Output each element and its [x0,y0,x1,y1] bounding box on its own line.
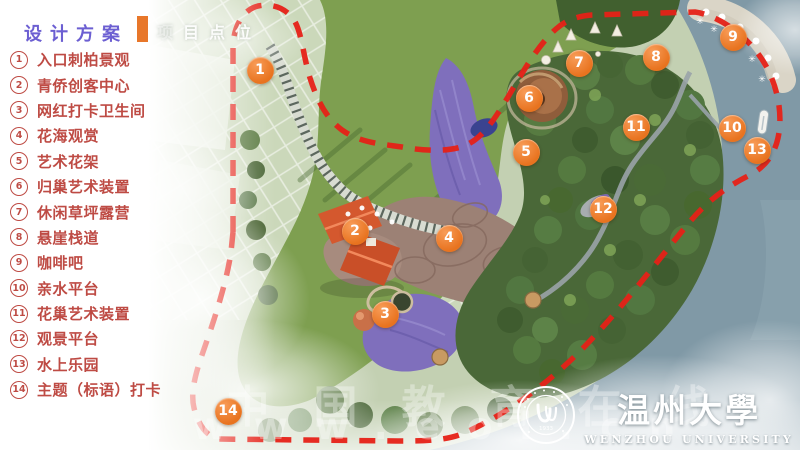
svg-text:✳: ✳ [710,25,718,35]
legend-item-number: 13 [10,355,28,373]
legend-item-label: 归巢艺术装置 [37,176,130,197]
university-seal-icon: 1933 [516,385,576,445]
map-marker-14: 14 [215,398,242,425]
legend-item: 3网红打卡卫生间 [10,98,161,123]
legend-list: 1入口刺柏景观2青侨创客中心3网红打卡卫生间4花海观赏5艺术花架6归巢艺术装置7… [10,47,161,402]
legend-item-number: 11 [10,305,28,323]
map-marker-12: 12 [590,196,617,223]
legend-item-label: 网红打卡卫生间 [37,100,146,121]
svg-text:✳: ✳ [758,75,766,85]
legend-item: 14主题（标语）打卡 [10,377,161,402]
map-marker-5: 5 [513,139,540,166]
legend-item-number: 2 [10,76,28,94]
map-marker-4: 4 [436,225,463,252]
legend-item-number: 7 [10,203,28,221]
legend-item-label: 亲水平台 [37,278,99,299]
legend-item-label: 艺术花架 [37,151,99,172]
orange-bar [137,16,148,42]
legend-item: 5艺术花架 [10,149,161,174]
legend-item: 1入口刺柏景观 [10,47,161,72]
legend-item: 11花巢艺术装置 [10,301,161,326]
legend-item-label: 入口刺柏景观 [37,49,130,70]
svg-text:1933: 1933 [539,426,553,432]
legend-item: 12观景平台 [10,326,161,351]
design-plan-slide: ✳✳✳ ✳✳ [0,0,800,450]
legend-item: 2青侨创客中心 [10,72,161,97]
legend-item-label: 花海观赏 [37,125,99,146]
legend-item-label: 咖啡吧 [37,252,84,273]
legend-item: 10亲水平台 [10,276,161,301]
map-marker-11: 11 [623,114,650,141]
legend-item-number: 6 [10,178,28,196]
legend-item-number: 9 [10,254,28,272]
legend-item-label: 观景平台 [37,328,99,349]
map-marker-2: 2 [342,218,369,245]
legend-item-number: 12 [10,330,28,348]
page-title: 设计方案 [24,20,128,46]
university-name-zh: 温州大學 [617,384,761,432]
university-logo: 1933 温州大學 WENZHOU UNIVERSITY [516,384,794,446]
legend-item-number: 5 [10,152,28,170]
legend-item: 6归巢艺术装置 [10,174,161,199]
legend-panel: 设计方案 1入口刺柏景观2青侨创客中心3网红打卡卫生间4花海观赏5艺术花架6归巢… [0,0,215,450]
map-marker-7: 7 [566,50,593,77]
legend-item-number: 10 [10,279,28,297]
legend-item: 8悬崖栈道 [10,225,161,250]
legend-item: 7休闲草坪露营 [10,199,161,224]
map-marker-8: 8 [643,44,670,71]
legend-item-label: 青侨创客中心 [37,75,130,96]
university-names: 温州大學 WENZHOU UNIVERSITY [584,384,794,446]
legend-item-number: 4 [10,127,28,145]
legend-item-number: 14 [10,381,28,399]
map-marker-1: 1 [247,57,274,84]
legend-item-number: 8 [10,228,28,246]
legend-item-label: 花巢艺术装置 [37,303,130,324]
legend-item: 4花海观赏 [10,123,161,148]
legend-item-label: 主题（标语）打卡 [37,379,161,400]
map-marker-10: 10 [719,115,746,142]
svg-text:✳: ✳ [696,17,704,27]
map-marker-3: 3 [372,301,399,328]
legend-item-label: 悬崖栈道 [37,227,99,248]
map-marker-9: 9 [720,24,747,51]
map-marker-13: 13 [744,137,771,164]
legend-item-label: 水上乐园 [37,354,99,375]
map-header-title: 项目点位 [157,19,261,43]
university-name-en: WENZHOU UNIVERSITY [584,433,794,446]
legend-item-number: 3 [10,101,28,119]
legend-item: 13水上乐园 [10,352,161,377]
map-marker-6: 6 [516,85,543,112]
legend-item: 9咖啡吧 [10,250,161,275]
legend-item-number: 1 [10,51,28,69]
legend-item-label: 休闲草坪露营 [37,202,130,223]
